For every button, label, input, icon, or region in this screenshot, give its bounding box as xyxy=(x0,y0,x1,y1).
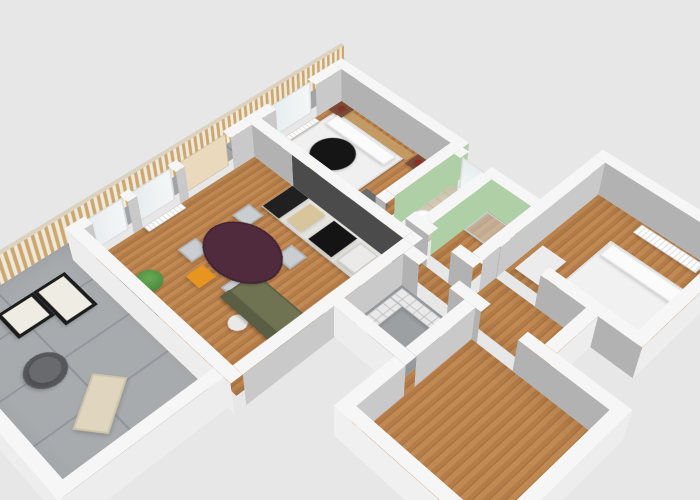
floor-plan-3d-viewport[interactable] xyxy=(0,0,700,500)
apartment-floor-plan xyxy=(0,0,700,500)
